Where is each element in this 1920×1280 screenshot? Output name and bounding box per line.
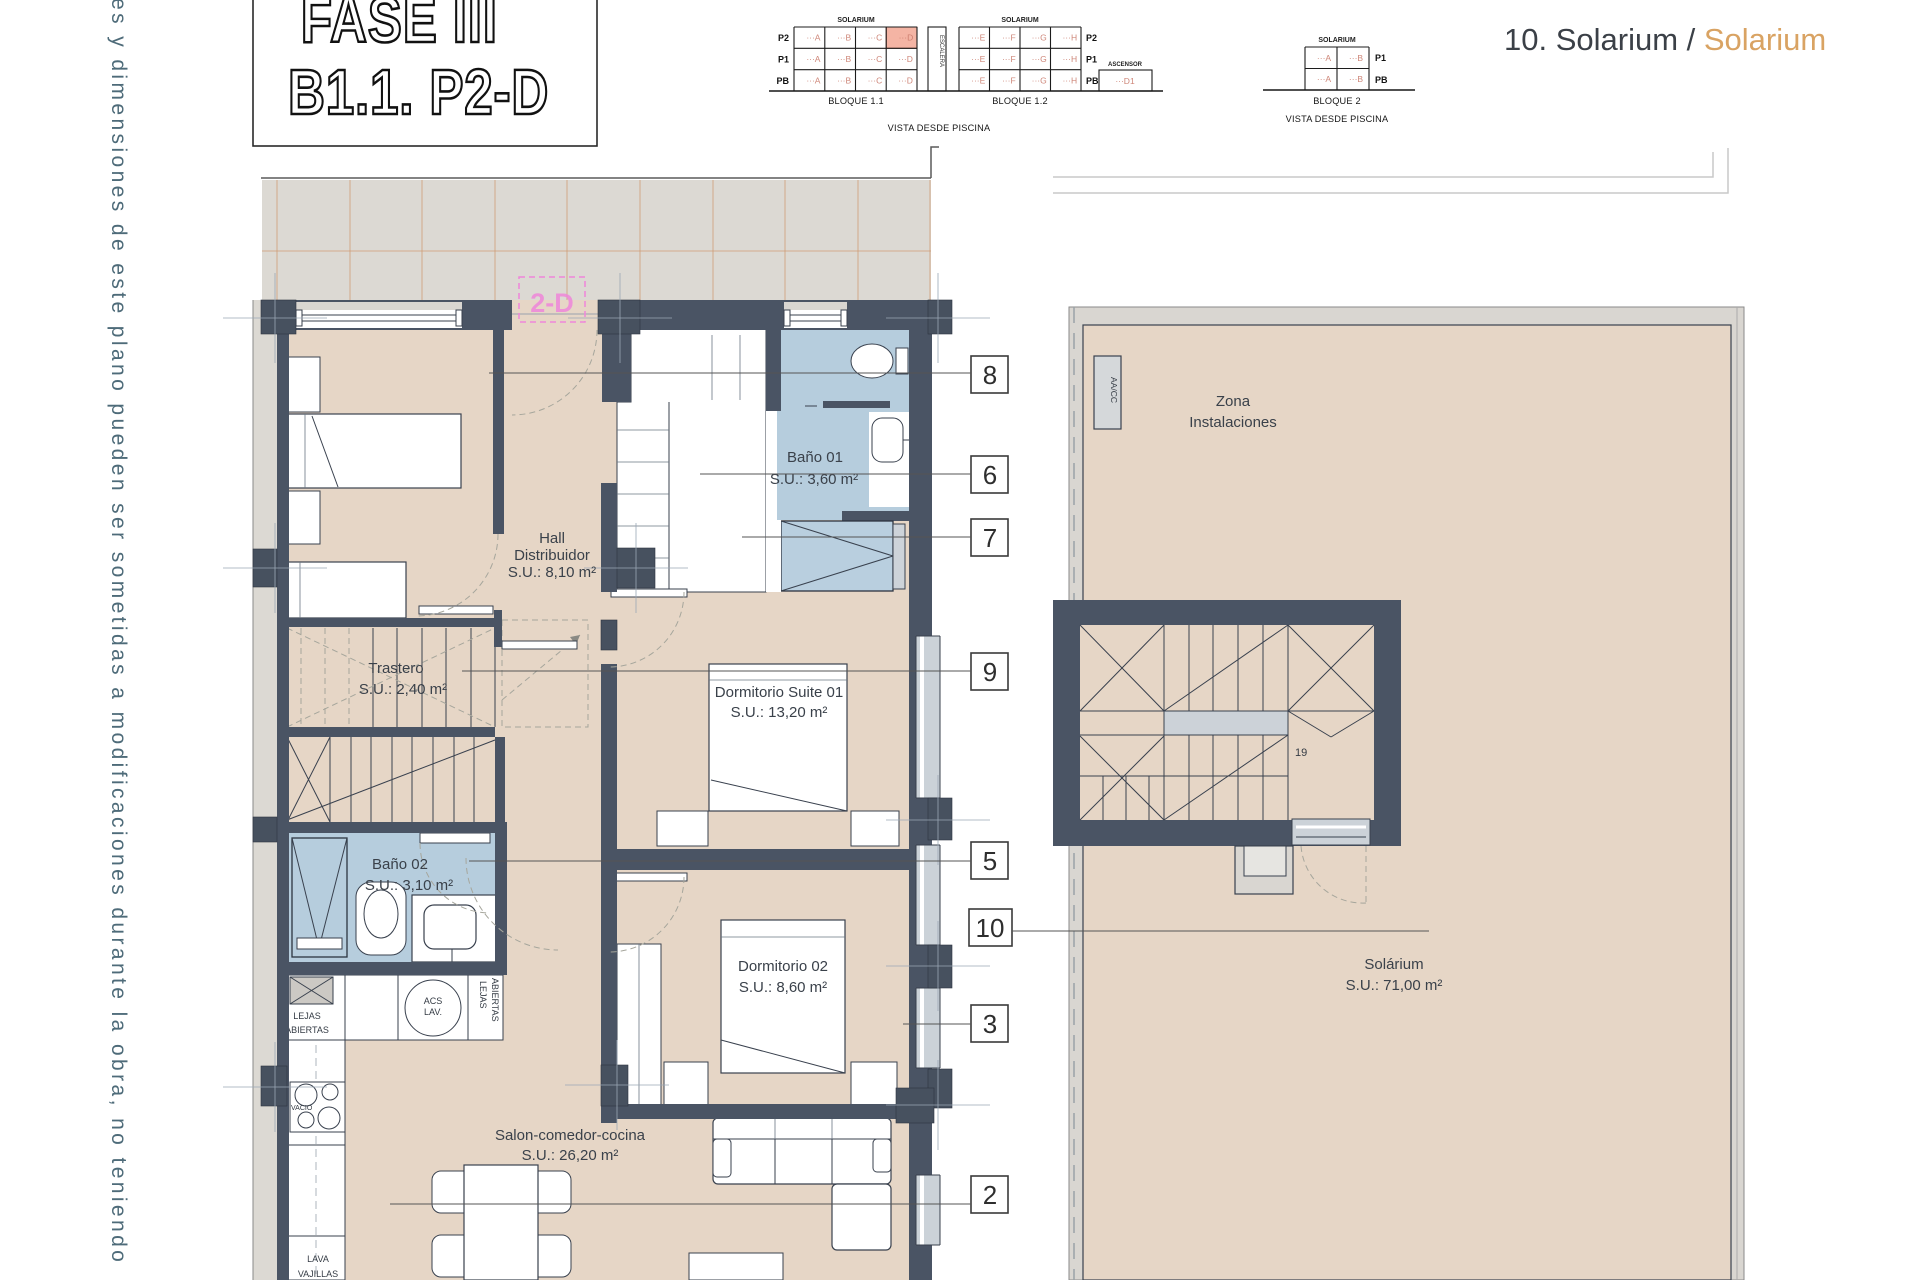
svg-text:LEJAS: LEJAS xyxy=(293,1011,321,1021)
svg-text:LAVA: LAVA xyxy=(307,1254,329,1264)
svg-text:VISTA DESDE PISCINA: VISTA DESDE PISCINA xyxy=(888,123,991,133)
svg-text:S.U.: 71,00 m²: S.U.: 71,00 m² xyxy=(1346,977,1443,994)
svg-text:···A: ···A xyxy=(1317,74,1331,84)
svg-text:3: 3 xyxy=(983,1009,997,1039)
svg-text:LEJAS: LEJAS xyxy=(478,981,488,1009)
svg-text:VACIO: VACIO xyxy=(291,1105,313,1112)
svg-text:···G: ···G xyxy=(1032,54,1047,64)
svg-text:···E: ···E xyxy=(971,54,985,64)
svg-text:···C: ···C xyxy=(868,33,883,43)
svg-text:···D: ···D xyxy=(898,54,913,64)
svg-text:BLOQUE 1.1: BLOQUE 1.1 xyxy=(828,96,884,106)
svg-text:LAV.: LAV. xyxy=(424,1007,442,1017)
svg-text:Baño 01: Baño 01 xyxy=(787,449,843,466)
svg-text:···D: ···D xyxy=(898,75,913,85)
svg-text:Dormitorio 02: Dormitorio 02 xyxy=(738,958,828,975)
svg-text:···H: ···H xyxy=(1062,54,1077,64)
svg-text:Hall: Hall xyxy=(539,530,565,547)
svg-text:6: 6 xyxy=(983,460,997,490)
svg-text:S.U.: 26,20 m²: S.U.: 26,20 m² xyxy=(522,1147,619,1164)
svg-text:···H: ···H xyxy=(1062,75,1077,85)
svg-text:Solárium: Solárium xyxy=(1364,956,1423,973)
svg-text:···C: ···C xyxy=(868,54,883,64)
svg-text:···B: ···B xyxy=(1349,53,1363,63)
svg-text:Dormitorio Suite 01: Dormitorio Suite 01 xyxy=(715,684,843,701)
svg-text:8: 8 xyxy=(983,360,997,390)
svg-text:10: 10 xyxy=(976,913,1005,943)
svg-text:B1.1. P2-D: B1.1. P2-D xyxy=(288,58,549,129)
svg-text:···B: ···B xyxy=(837,75,851,85)
svg-text:ABIERTAS: ABIERTAS xyxy=(490,978,500,1022)
svg-text:5: 5 xyxy=(983,846,997,876)
svg-text:Instalaciones: Instalaciones xyxy=(1189,414,1277,431)
svg-text:···E: ···E xyxy=(971,33,985,43)
svg-text:ESCALERA: ESCALERA xyxy=(938,35,944,67)
svg-text:S.U.: 8,10 m²: S.U.: 8,10 m² xyxy=(508,564,596,581)
svg-text:Salon-comedor-cocina: Salon-comedor-cocina xyxy=(495,1127,646,1144)
svg-text:S.U.: 2,40 m²: S.U.: 2,40 m² xyxy=(359,681,447,698)
svg-text:···A: ···A xyxy=(806,54,820,64)
svg-text:10. Solarium / Solarium: 10. Solarium / Solarium xyxy=(1504,22,1826,57)
svg-text:SOLARIUM: SOLARIUM xyxy=(1001,17,1039,24)
svg-text:Baño 02: Baño 02 xyxy=(372,856,428,873)
svg-text:···G: ···G xyxy=(1032,75,1047,85)
svg-text:···F: ···F xyxy=(1002,33,1016,43)
svg-text:19: 19 xyxy=(1295,747,1307,759)
svg-text:AA/CC: AA/CC xyxy=(1109,377,1119,403)
svg-text:···H: ···H xyxy=(1062,33,1077,43)
svg-text:···D: ···D xyxy=(899,33,914,43)
svg-text:S.U.: 3,10 m²: S.U.: 3,10 m² xyxy=(365,877,453,894)
svg-text:P2: P2 xyxy=(778,33,789,43)
svg-text:Trastero: Trastero xyxy=(368,660,423,677)
svg-text:···B: ···B xyxy=(837,54,851,64)
svg-text:···A: ···A xyxy=(1317,53,1331,63)
svg-text:SOLARIUM: SOLARIUM xyxy=(837,17,875,24)
svg-text:···D1: ···D1 xyxy=(1115,76,1135,86)
svg-text:PB: PB xyxy=(1086,76,1099,86)
svg-text:Distribuidor: Distribuidor xyxy=(514,547,590,564)
svg-text:9: 9 xyxy=(983,657,997,687)
svg-text:2-D: 2-D xyxy=(530,288,574,318)
svg-text:S.U.: 13,20 m²: S.U.: 13,20 m² xyxy=(731,704,828,721)
svg-text:P1: P1 xyxy=(1375,53,1386,63)
svg-text:es y dimensiones de este plano: es y dimensiones de este plano pueden se… xyxy=(107,0,130,1265)
svg-text:···B: ···B xyxy=(837,33,851,43)
svg-text:PB: PB xyxy=(1375,75,1388,85)
svg-text:VAJILLAS: VAJILLAS xyxy=(298,1269,338,1279)
svg-text:VISTA DESDE PISCINA: VISTA DESDE PISCINA xyxy=(1286,114,1389,124)
svg-text:···F: ···F xyxy=(1002,54,1016,64)
svg-text:···E: ···E xyxy=(971,75,985,85)
svg-text:FASE III: FASE III xyxy=(301,0,498,56)
svg-text:7: 7 xyxy=(983,523,997,553)
svg-text:P1: P1 xyxy=(778,55,789,65)
svg-text:SOLARIUM: SOLARIUM xyxy=(1318,37,1356,44)
svg-text:···B: ···B xyxy=(1349,74,1363,84)
svg-text:···A: ···A xyxy=(806,75,820,85)
svg-text:BLOQUE 2: BLOQUE 2 xyxy=(1313,96,1361,106)
svg-text:P2: P2 xyxy=(1086,33,1097,43)
svg-text:S.U.: 8,60 m²: S.U.: 8,60 m² xyxy=(739,979,827,996)
svg-text:···F: ···F xyxy=(1002,75,1016,85)
svg-text:···A: ···A xyxy=(806,33,820,43)
svg-text:···G: ···G xyxy=(1032,33,1047,43)
svg-text:P1: P1 xyxy=(1086,55,1097,65)
svg-text:2: 2 xyxy=(983,1180,997,1210)
svg-text:Zona: Zona xyxy=(1216,393,1251,410)
svg-text:PB: PB xyxy=(776,76,789,86)
svg-text:ASCENSOR: ASCENSOR xyxy=(1108,62,1143,68)
svg-text:BLOQUE 1.2: BLOQUE 1.2 xyxy=(992,96,1048,106)
svg-text:ACS: ACS xyxy=(424,996,443,1006)
svg-text:ABIERTAS: ABIERTAS xyxy=(285,1025,329,1035)
svg-text:···C: ···C xyxy=(868,75,883,85)
